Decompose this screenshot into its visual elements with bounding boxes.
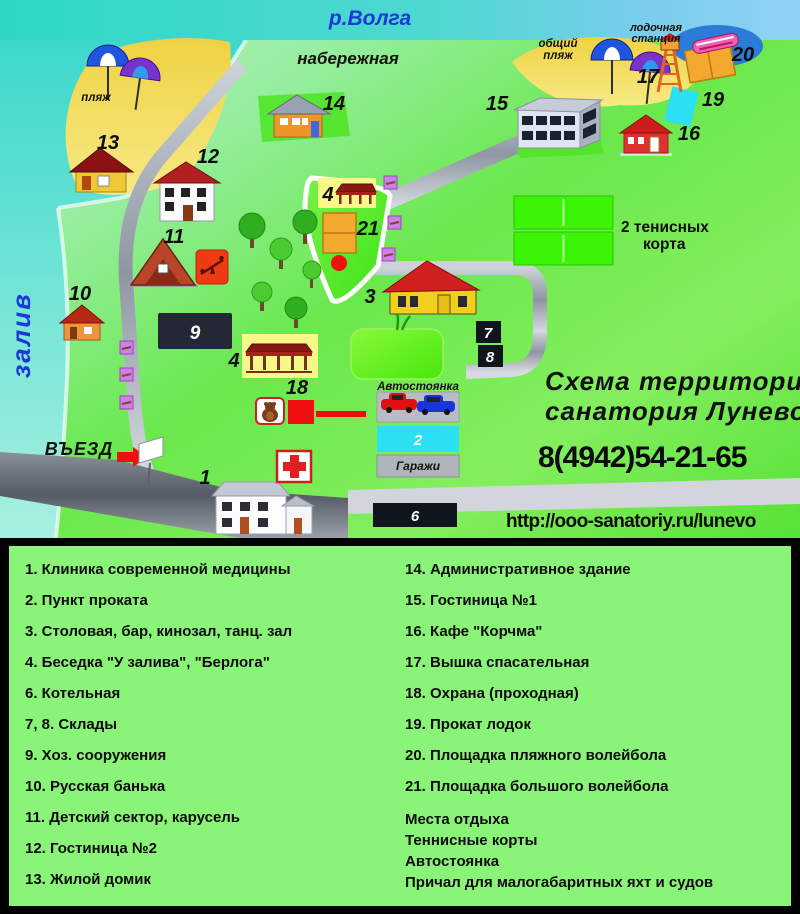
marker-16: 16 xyxy=(678,123,701,145)
territory-map: р.Волга залив набережная пляж общий пляж… xyxy=(0,0,800,538)
parking-label: Автостоянка xyxy=(376,381,459,393)
legend-item-14: 14. Административное здание xyxy=(405,560,789,579)
legend-section: 1. Клиника современной медицины 2. Пункт… xyxy=(0,538,800,914)
marker-11: 11 xyxy=(164,226,185,248)
marker-3: 3 xyxy=(364,286,375,308)
phone-number: 8(4942)54-21-65 xyxy=(538,441,747,474)
marker-2: 2 xyxy=(413,432,423,449)
legend-item-12: 12. Гостиница №2 xyxy=(25,839,397,858)
marker-4b: 4 xyxy=(227,350,239,372)
marker-9: 9 xyxy=(190,323,201,344)
legend-item-9: 9. Хоз. сооружения xyxy=(25,746,397,765)
garages-label: Гаражи xyxy=(396,459,441,473)
map-canvas: р.Волга залив набережная пляж общий пляж… xyxy=(0,0,800,538)
legend-item-18: 18. Охрана (проходная) xyxy=(405,684,789,703)
marker-15: 15 xyxy=(486,93,509,115)
website-url[interactable]: http://ooo-sanatoriy.ru/lunevo xyxy=(506,511,756,532)
legend-item-1: 1. Клиника современной медицины xyxy=(25,560,397,579)
marker-17: 17 xyxy=(637,66,660,88)
checkpoint-18-block xyxy=(288,400,314,424)
parking-lot xyxy=(377,392,459,422)
river-label: р.Волга xyxy=(328,7,412,30)
map-title-line2: санатория Лунево xyxy=(545,396,800,426)
hotel-1-building-15-icon xyxy=(514,98,604,158)
marker-1: 1 xyxy=(199,467,210,489)
legend-column-right: 14. Административное здание 15. Гостиниц… xyxy=(405,560,789,894)
legend-item-17: 17. Вышка спасательная xyxy=(405,653,789,672)
common-beach-label-2: пляж xyxy=(543,50,573,62)
legend-item-2: 2. Пункт проката xyxy=(25,591,397,610)
marker-20: 20 xyxy=(731,44,754,66)
marker-12: 12 xyxy=(197,146,219,168)
legend-extra-rest-places: Места отдыха xyxy=(405,810,789,830)
legend-item-13: 13. Жилой домик xyxy=(25,870,397,889)
legend-panel: 1. Клиника современной медицины 2. Пункт… xyxy=(9,546,791,906)
marker-7: 7 xyxy=(484,325,493,342)
entrance-label: ВЪЕЗД xyxy=(45,439,114,459)
legend-extras: Места отдыха Теннисные корты Автостоянка… xyxy=(405,810,789,893)
security-bear-icon xyxy=(256,398,284,424)
barrier-line xyxy=(316,411,366,417)
marker-19: 19 xyxy=(702,89,725,111)
legend-item-21: 21. Площадка большого волейбола xyxy=(405,777,789,796)
map-title-line1: Схема территории xyxy=(545,366,800,396)
legend-item-16: 16. Кафе "Корчма" xyxy=(405,622,789,641)
boat-station-label-2: станция xyxy=(632,33,681,45)
legend-extra-pier: Причал для малогабаритных яхт и судов xyxy=(405,873,789,893)
beach-label: пляж xyxy=(81,92,111,104)
tennis-label-1: 2 тенисных xyxy=(621,219,709,236)
tennis-label-2: корта xyxy=(643,236,686,253)
marker-14: 14 xyxy=(323,93,345,115)
legend-extra-tennis-courts: Теннисные корты xyxy=(405,831,789,851)
carousel-icon xyxy=(196,250,228,284)
legend-item-15: 15. Гостиница №1 xyxy=(405,591,789,610)
legend-column-left: 1. Клиника современной медицины 2. Пункт… xyxy=(25,560,397,901)
legend-item-20: 20. Площадка пляжного волейбола xyxy=(405,746,789,765)
legend-item-10: 10. Русская банька xyxy=(25,777,397,796)
bay-label: залив xyxy=(6,292,36,378)
marker-4a: 4 xyxy=(321,184,333,206)
legend-item-3: 3. Столовая, бар, кинозал, танц. зал xyxy=(25,622,397,641)
common-beach-label-1: общий xyxy=(539,38,578,50)
marker-18: 18 xyxy=(286,377,309,399)
legend-item-7-8: 7, 8. Склады xyxy=(25,715,397,734)
sanatorium-map-page: р.Волга залив набережная пляж общий пляж… xyxy=(0,0,800,914)
legend-item-4: 4. Беседка "У залива", "Берлога" xyxy=(25,653,397,672)
legend-item-6: 6. Котельная xyxy=(25,684,397,703)
marker-8: 8 xyxy=(486,349,495,366)
legend-item-11: 11. Детский сектор, карусель xyxy=(25,808,397,827)
marker-6: 6 xyxy=(411,508,420,525)
legend-item-19: 19. Прокат лодок xyxy=(405,715,789,734)
embankment-label: набережная xyxy=(297,49,399,68)
red-cross-sign-icon xyxy=(277,451,311,482)
legend-extra-parking: Автостоянка xyxy=(405,852,789,872)
marker-13: 13 xyxy=(97,132,119,154)
marker-10: 10 xyxy=(69,283,91,305)
marker-21: 21 xyxy=(356,218,379,240)
